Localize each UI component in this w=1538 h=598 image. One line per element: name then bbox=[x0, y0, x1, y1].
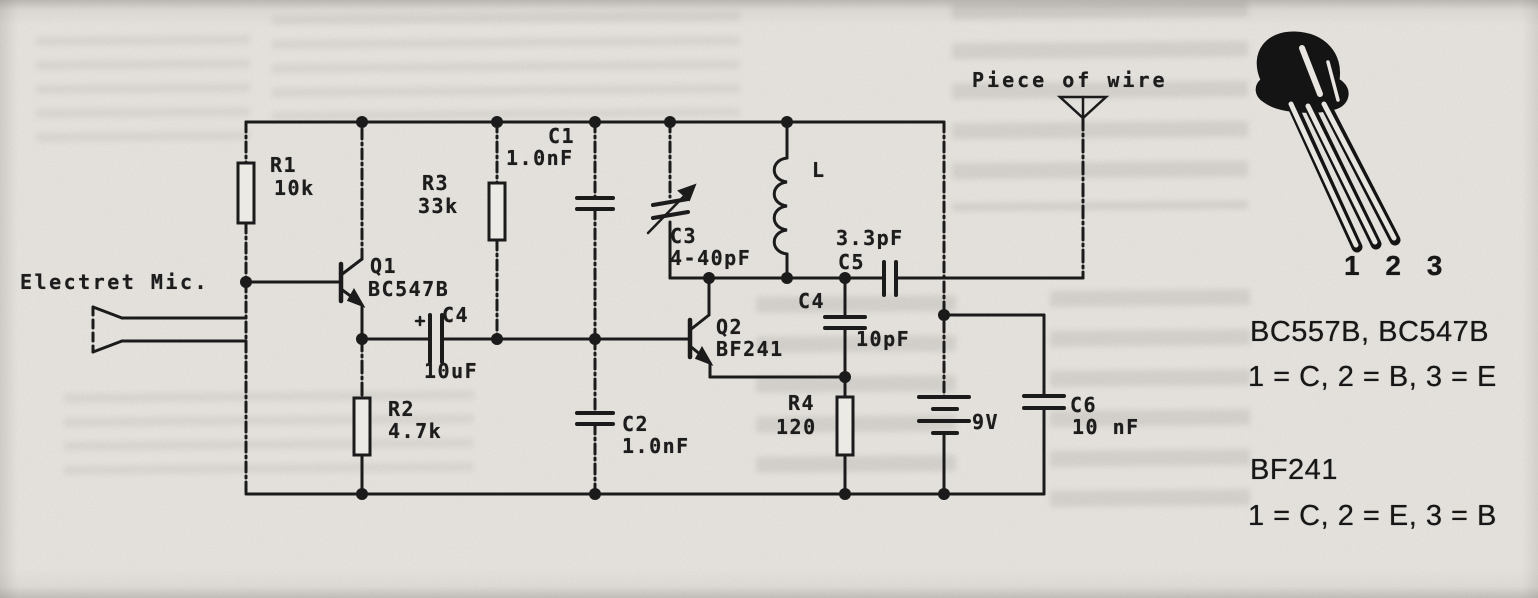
to92-package-drawing bbox=[1257, 33, 1395, 247]
ground-rail-wire bbox=[246, 282, 1044, 494]
scanned-schematic-page: Electret Mic. Piece of wire R1 10k R3 33… bbox=[0, 0, 1538, 598]
transistor-q1-symbol bbox=[246, 122, 362, 339]
c4-audio-value: 10uF bbox=[424, 361, 478, 381]
battery-9v-symbol bbox=[919, 397, 969, 433]
c5-ref: C5 bbox=[838, 252, 865, 272]
r3-ref: R3 bbox=[422, 173, 449, 193]
c1-ref: C1 bbox=[548, 126, 575, 146]
bf-mapping-text: 1 = C, 2 = E, 3 = B bbox=[1248, 502, 1497, 531]
r1-value: 10k bbox=[274, 178, 315, 198]
c2-ref: C2 bbox=[622, 414, 649, 434]
q1-ref: Q1 bbox=[370, 256, 397, 276]
r1-ref: R1 bbox=[270, 155, 297, 175]
c6-ref: C6 bbox=[1070, 395, 1097, 415]
c3-ref: C3 bbox=[670, 226, 697, 246]
c4-rf-ref: C4 bbox=[798, 291, 825, 311]
inductor-ref: L bbox=[812, 160, 826, 180]
capacitor-c5-symbol bbox=[884, 262, 896, 295]
q1-part: BC547B bbox=[368, 279, 449, 299]
c3-value: 4-40pF bbox=[670, 248, 751, 268]
capacitor-c2-symbol bbox=[577, 339, 613, 494]
antenna-label: Piece of wire bbox=[972, 70, 1168, 90]
bc-models-text: BC557B, BC547B bbox=[1250, 318, 1489, 347]
resistor-r2-symbol bbox=[354, 339, 370, 494]
inductor-l-symbol bbox=[774, 122, 787, 278]
r4-value: 120 bbox=[776, 417, 817, 437]
c4-rf-value: 10pF bbox=[856, 329, 910, 349]
r2-ref: R2 bbox=[388, 399, 415, 419]
battery-value: 9V bbox=[972, 412, 999, 432]
r4-ref: R4 bbox=[788, 393, 815, 413]
resistor-r1-symbol bbox=[238, 122, 254, 282]
q2-ref: Q2 bbox=[716, 317, 743, 337]
resistor-r3-symbol bbox=[489, 122, 505, 339]
package-pin-numbers: 1 2 3 bbox=[1344, 252, 1451, 280]
capacitor-c1-symbol bbox=[577, 122, 613, 339]
c4-audio-ref: C4 bbox=[442, 305, 469, 325]
c1-value: 1.0nF bbox=[506, 148, 574, 168]
r3-value: 33k bbox=[418, 196, 459, 216]
r2-value: 4.7k bbox=[388, 421, 442, 441]
bc-mapping-text: 1 = C, 2 = B, 3 = E bbox=[1248, 363, 1497, 392]
electret-mic-symbol bbox=[93, 307, 246, 352]
q2-part: BF241 bbox=[716, 339, 784, 359]
c2-value: 1.0nF bbox=[622, 436, 690, 456]
bf-model-text: BF241 bbox=[1250, 456, 1338, 485]
c6-value: 10 nF bbox=[1072, 417, 1140, 437]
c5-value: 3.3pF bbox=[836, 228, 904, 248]
mic-label: Electret Mic. bbox=[20, 272, 209, 292]
resistor-r4-symbol bbox=[837, 377, 853, 494]
antenna-symbol bbox=[1060, 97, 1106, 278]
capacitor-c6-symbol bbox=[944, 315, 1064, 494]
